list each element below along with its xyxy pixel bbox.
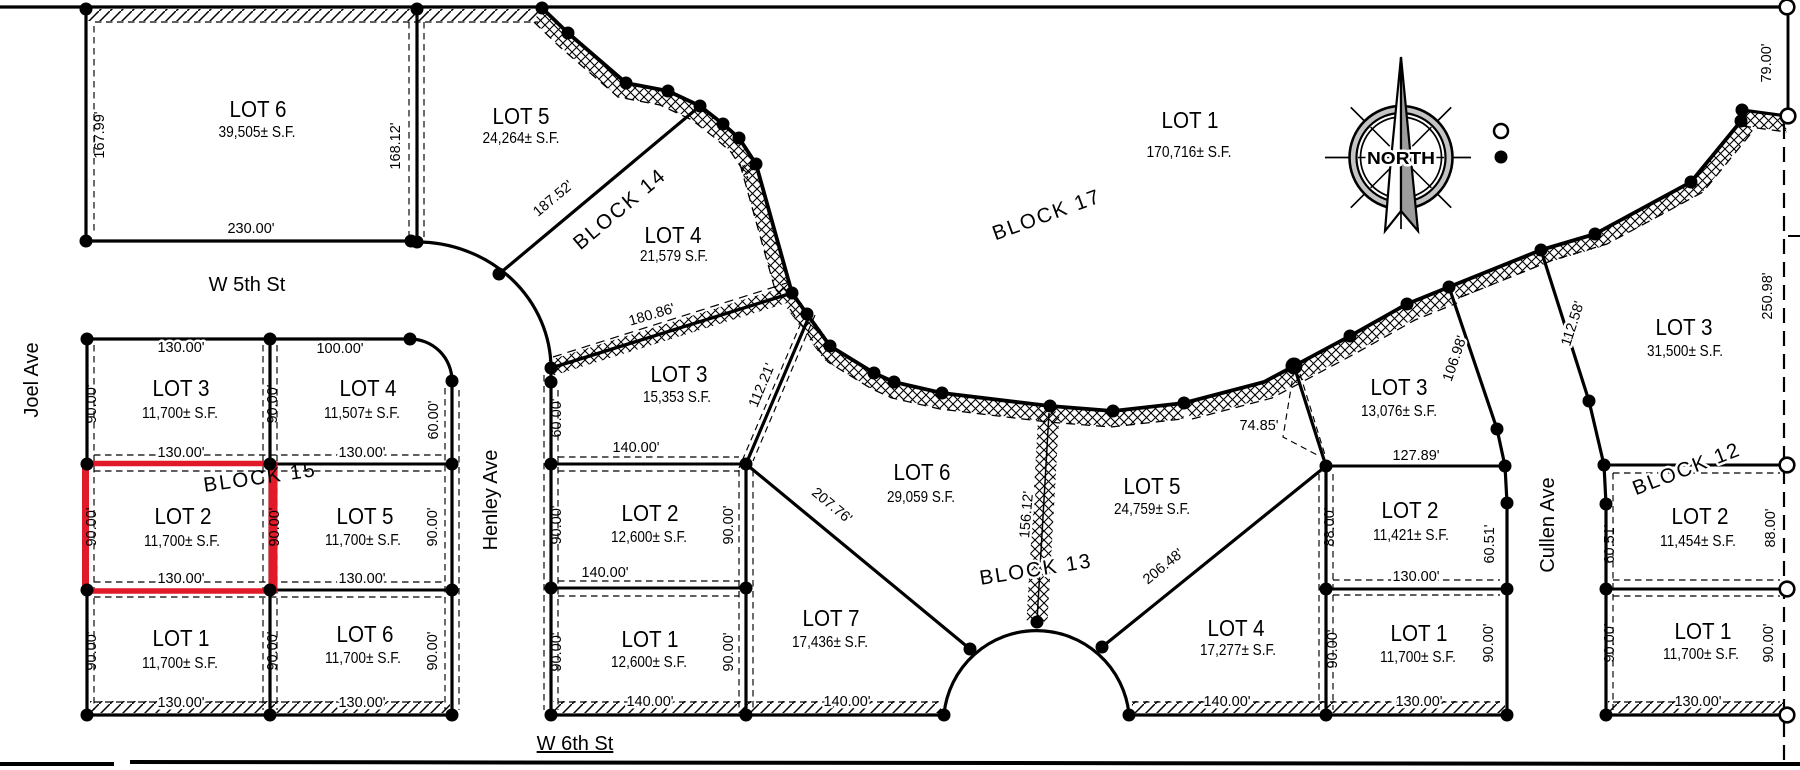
svg-text:LOT 4: LOT 4 [340,375,397,401]
svg-text:130.00': 130.00' [157,340,204,356]
svg-text:NORTH: NORTH [1367,148,1435,168]
svg-text:W 5th St: W 5th St [209,274,286,296]
svg-text:LOT 5: LOT 5 [1124,473,1181,499]
svg-text:100.00': 100.00' [316,341,363,357]
svg-text:LOT 3: LOT 3 [153,375,210,401]
svg-text:167.99': 167.99' [92,111,108,158]
svg-text:230.00': 230.00' [227,221,274,237]
svg-text:LOT 3: LOT 3 [651,361,708,387]
svg-text:140.00': 140.00' [581,565,628,581]
svg-text:90.00': 90.00' [1325,629,1341,668]
svg-text:60.51': 60.51' [1482,524,1498,563]
svg-text:130.00': 130.00' [338,571,385,587]
svg-text:11,421± S.F.: 11,421± S.F. [1373,527,1449,544]
svg-text:11,700± S.F.: 11,700± S.F. [142,405,218,422]
svg-text:LOT 6: LOT 6 [230,96,287,122]
svg-text:12,600± S.F.: 12,600± S.F. [611,529,687,546]
svg-text:31,500± S.F.: 31,500± S.F. [1647,343,1723,360]
svg-text:11,700± S.F.: 11,700± S.F. [144,533,220,550]
svg-text:11,507± S.F.: 11,507± S.F. [324,405,400,422]
svg-text:90.00': 90.00' [425,631,441,670]
svg-text:LOT 3: LOT 3 [1371,374,1428,400]
svg-text:170,716± S.F.: 170,716± S.F. [1147,144,1232,161]
svg-text:11,700± S.F.: 11,700± S.F. [1380,649,1456,666]
svg-text:90.00': 90.00' [549,505,565,544]
svg-text:60.51': 60.51' [1602,524,1618,563]
svg-text:LOT 6: LOT 6 [894,459,951,485]
svg-text:140.00': 140.00' [626,694,673,710]
svg-text:90.00': 90.00' [265,631,281,670]
svg-text:LOT 2: LOT 2 [1382,497,1439,523]
svg-text:90.00': 90.00' [721,505,737,544]
svg-text:90.00': 90.00' [721,632,737,671]
svg-text:LOT 5: LOT 5 [493,103,550,129]
svg-text:13,076± S.F.: 13,076± S.F. [1361,403,1437,420]
svg-text:11,700± S.F.: 11,700± S.F. [142,655,218,672]
svg-text:11,700± S.F.: 11,700± S.F. [1663,646,1739,663]
svg-text:60.00': 60.00' [549,398,565,437]
svg-text:130.00': 130.00' [1674,694,1721,710]
svg-text:140.00': 140.00' [823,694,870,710]
svg-text:LOT 1: LOT 1 [1391,620,1448,646]
svg-text:39,505± S.F.: 39,505± S.F. [219,124,296,141]
svg-text:LOT 4: LOT 4 [645,222,702,248]
svg-text:74.85': 74.85' [1239,418,1278,434]
svg-text:Henley Ave: Henley Ave [480,450,502,551]
svg-text:127.89': 127.89' [1392,448,1439,464]
svg-text:140.00': 140.00' [1203,694,1250,710]
svg-text:90.00': 90.00' [84,507,100,546]
svg-text:60.00': 60.00' [426,400,442,439]
svg-text:79.00': 79.00' [1759,43,1775,82]
svg-text:90.00': 90.00' [267,507,283,546]
svg-text:24,264± S.F.: 24,264± S.F. [483,130,560,147]
svg-text:88.00': 88.00' [1322,507,1338,546]
svg-text:130.00': 130.00' [338,445,385,461]
svg-text:LOT 7: LOT 7 [803,605,860,631]
svg-text:21,579 S.F.: 21,579 S.F. [640,248,708,265]
svg-text:130.00': 130.00' [157,445,204,461]
svg-text:LOT 2: LOT 2 [1672,503,1729,529]
svg-text:11,700± S.F.: 11,700± S.F. [325,650,401,667]
svg-text:90.00': 90.00' [84,631,100,670]
svg-text:LOT 2: LOT 2 [622,500,679,526]
svg-text:LOT 1: LOT 1 [1162,107,1219,133]
svg-text:24,759± S.F.: 24,759± S.F. [1114,501,1190,518]
svg-text:90.00': 90.00' [1761,623,1777,662]
svg-text:90.00': 90.00' [265,384,281,423]
svg-text:LOT 4: LOT 4 [1208,615,1265,641]
svg-text:11,454± S.F.: 11,454± S.F. [1660,533,1736,550]
svg-text:12,600± S.F.: 12,600± S.F. [611,654,687,671]
svg-text:250.98': 250.98' [1760,272,1776,319]
svg-text:Joel Ave: Joel Ave [21,342,43,417]
svg-text:90.00': 90.00' [425,507,441,546]
svg-text:140.00': 140.00' [612,440,659,456]
svg-text:90.00': 90.00' [84,384,100,423]
svg-text:17,277± S.F.: 17,277± S.F. [1200,642,1276,659]
svg-text:168.12': 168.12' [388,122,404,169]
svg-text:W 6th St: W 6th St [537,733,614,755]
svg-text:LOT 1: LOT 1 [1675,618,1732,644]
svg-text:90.00': 90.00' [549,632,565,671]
svg-text:90.00': 90.00' [1602,623,1618,662]
svg-text:LOT 1: LOT 1 [622,626,679,652]
svg-text:130.00': 130.00' [1395,694,1442,710]
svg-text:LOT 1: LOT 1 [153,625,210,651]
svg-text:130.00': 130.00' [338,695,385,711]
svg-text:130.00': 130.00' [157,695,204,711]
svg-text:17,436± S.F.: 17,436± S.F. [792,634,868,651]
svg-text:88.00': 88.00' [1763,508,1779,547]
svg-text:LOT 2: LOT 2 [155,503,212,529]
svg-text:11,700± S.F.: 11,700± S.F. [325,532,401,549]
svg-text:90.00': 90.00' [1481,623,1497,662]
svg-text:Cullen Ave: Cullen Ave [1537,477,1559,572]
svg-text:LOT 5: LOT 5 [337,503,394,529]
svg-text:130.00': 130.00' [1392,569,1439,585]
svg-text:15,353 S.F.: 15,353 S.F. [643,389,711,406]
svg-text:130.00': 130.00' [157,571,204,587]
svg-text:29,059 S.F.: 29,059 S.F. [887,489,955,506]
svg-text:LOT 3: LOT 3 [1656,314,1713,340]
svg-text:LOT 6: LOT 6 [337,621,394,647]
